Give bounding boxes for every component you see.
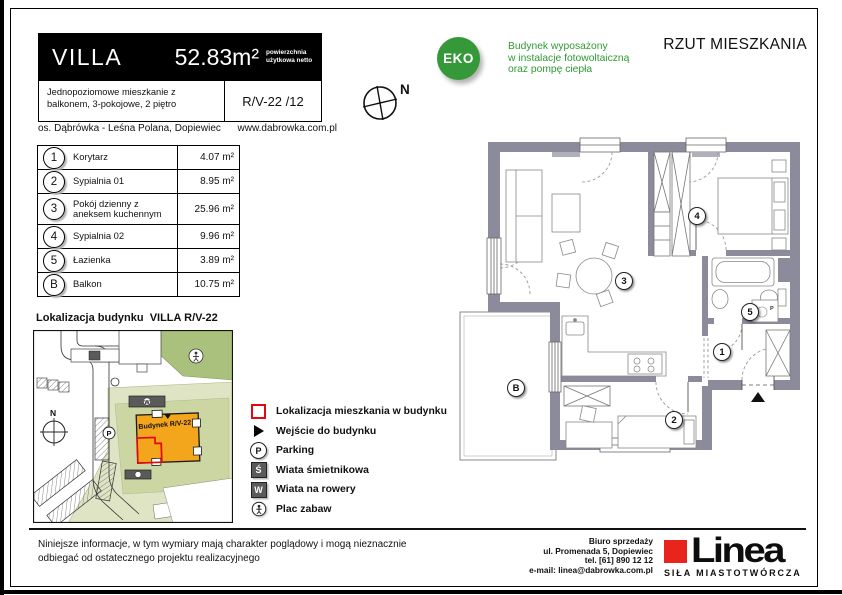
- room-number-badge: 5: [43, 250, 65, 272]
- area-value: 52.83m²: [175, 44, 259, 71]
- site-map-title: Lokalizacja budynku VILLA R/V-22: [36, 312, 218, 324]
- brand-title: VILLA: [52, 44, 122, 71]
- map-playground-icon: [189, 349, 203, 363]
- apartment-description: Jednopoziomowe mieszkanie z balkonem, 3-…: [39, 81, 224, 121]
- stove: [628, 354, 662, 374]
- page-title: RZUT MIESZKANIA: [560, 36, 807, 54]
- building-outline: [137, 364, 147, 372]
- linea-logo-text: Linea: [691, 531, 783, 571]
- room-name: Sypialnia 01: [70, 170, 177, 193]
- eco-badge: EKO: [437, 37, 480, 80]
- legend-label: Wejście do budynku: [276, 426, 376, 437]
- toilet-tank: [778, 289, 786, 306]
- table-row: 3 Pokój dzienny z aneksem kuchennym 25.9…: [38, 194, 239, 225]
- legend-label: Parking: [276, 445, 314, 456]
- room-area: 8.95 m²: [177, 170, 239, 193]
- shed-hatched: [59, 382, 69, 392]
- plan-room-label-3: 3: [615, 272, 633, 290]
- plan-room-label-1: 1: [713, 343, 731, 361]
- room-name: Balkon: [70, 273, 177, 296]
- playground-icon: [251, 501, 267, 517]
- table-row: B Balkon 10.75 m²: [38, 273, 239, 296]
- office-email[interactable]: e-mail: linea@dabrowka.com.pl: [420, 566, 653, 576]
- room-area: 9.96 m²: [177, 225, 239, 248]
- dining-table: [576, 258, 612, 294]
- washer-label: P: [770, 306, 774, 312]
- legend-label: Lokalizacja mieszkania w budynku: [276, 406, 447, 417]
- legend-item: Ś Wiata śmietnikowa: [250, 463, 447, 478]
- legend-label: Wiata na rowery: [276, 484, 356, 495]
- room-table: 1 Korytarz 4.07 m² 2 Sypialnia 01 8.95 m…: [37, 145, 240, 297]
- plan-room-label-2: 2: [665, 411, 683, 429]
- shed-hatched: [37, 378, 47, 388]
- nightstand: [772, 160, 786, 172]
- parking-label: P: [106, 429, 111, 438]
- sales-office-contact: Biuro sprzedaży ul. Promenada 5, Dopiewi…: [420, 537, 653, 575]
- target-building: Budynek R/V-22: [136, 409, 202, 466]
- room-area: 10.75 m²: [177, 273, 239, 296]
- brochure-page: VILLA 52.83m² powierzchnia użytkowa nett…: [0, 0, 842, 595]
- shed-marker: [89, 351, 100, 360]
- apartment-outline-icon: [251, 404, 266, 419]
- room-number-badge: 4: [43, 226, 65, 248]
- kitchen-sink: [566, 322, 584, 335]
- header-info-row: Jednopoziomowe mieszkanie z balkonem, 3-…: [39, 80, 321, 121]
- building-outline: [119, 330, 161, 364]
- room-area: 3.89 m²: [177, 249, 239, 272]
- table-row: 1 Korytarz 4.07 m²: [38, 146, 239, 170]
- radiators: [552, 152, 720, 157]
- map-legend: Lokalizacja mieszkania w budynku Wejście…: [250, 404, 447, 517]
- chair: [560, 239, 576, 255]
- compass-n-label: N: [400, 82, 410, 97]
- room-number-badge: B: [43, 274, 65, 296]
- legend-item: Plac zabaw: [250, 502, 447, 517]
- plan-room-label-4: 4: [688, 207, 706, 225]
- page-left-strip: [0, 0, 4, 595]
- legend-item: Lokalizacja mieszkania w budynku: [250, 404, 447, 419]
- room-name: Łazienka: [70, 249, 177, 272]
- room-area: 4.07 m²: [177, 146, 239, 169]
- eco-line: w instalacje fotowoltaiczną: [508, 53, 629, 65]
- table-row: 4 Sypialnia 02 9.96 m²: [38, 225, 239, 249]
- room-number-badge: 1: [43, 147, 65, 169]
- disclaimer-text: Niniejsze informacje, w tym wymiary mają…: [38, 538, 442, 565]
- website-link[interactable]: www.dabrowka.com.pl: [238, 123, 337, 134]
- unit-code: R/V-22 /12: [224, 81, 321, 121]
- entrance: [742, 380, 774, 402]
- room-name: Pokój dzienny z aneksem kuchennym: [70, 194, 177, 224]
- shed-hatched: [48, 380, 58, 390]
- room-name: Sypialnia 02: [70, 225, 177, 248]
- washbasin: [712, 290, 728, 309]
- trash-shed-icon: Ś: [251, 462, 267, 478]
- room-number-badge: 2: [43, 171, 65, 193]
- area-note: powierzchnia użytkowa netto: [266, 49, 314, 64]
- header-caption: os. Dąbrówka - Leśna Polana, Dopiewiec w…: [38, 123, 337, 134]
- table-row: 5 Łazienka 3.89 m²: [38, 249, 239, 273]
- chair: [602, 242, 618, 258]
- legend-item: P Parking: [250, 443, 447, 458]
- map-compass-n: N: [50, 408, 56, 418]
- north-compass-icon: N: [358, 76, 420, 126]
- entrance-arrow-icon: [751, 392, 765, 402]
- estate-location: os. Dąbrówka - Leśna Polana, Dopiewiec: [38, 123, 221, 134]
- plan-room-label-b: B: [507, 379, 525, 397]
- roundabout: [111, 378, 119, 386]
- entrance-arrow-icon: [254, 425, 264, 437]
- header-box: VILLA 52.83m² powierzchnia użytkowa nett…: [38, 33, 322, 122]
- floor-plan: P: [452, 134, 828, 474]
- chair: [556, 273, 571, 288]
- eco-line: oraz pompę ciepła: [508, 64, 629, 76]
- bike-shed-label: W: [144, 400, 150, 406]
- coffee-table: [552, 194, 580, 232]
- room-name: Korytarz: [70, 146, 177, 169]
- footer-divider: [29, 528, 806, 530]
- legend-item: W Wiata na rowery: [250, 482, 447, 497]
- room-number-badge: 3: [43, 198, 65, 220]
- legend-item: Wejście do budynku: [250, 424, 447, 439]
- table-row: 2 Sypialnia 01 8.95 m²: [38, 170, 239, 194]
- legend-label: Wiata śmietnikowa: [276, 465, 369, 476]
- legend-label: Plac zabaw: [276, 504, 331, 515]
- plan-room-label-5: 5: [741, 303, 759, 321]
- bike-shed-icon: W: [251, 482, 267, 498]
- desk: [566, 422, 612, 448]
- linea-logo-square: [664, 540, 687, 563]
- parking-icon: P: [250, 442, 267, 459]
- page-bottom-bar: [0, 590, 842, 594]
- desk-chair: [580, 406, 597, 423]
- linea-logo-tagline: SIŁA MIASTOTWÓRCZA: [664, 568, 810, 578]
- nightstand: [772, 238, 786, 250]
- room-area: 25.96 m²: [177, 194, 239, 224]
- header-black-band: VILLA 52.83m² powierzchnia użytkowa nett…: [39, 34, 321, 80]
- site-map: W Budynek R/V-22 P N: [33, 330, 233, 523]
